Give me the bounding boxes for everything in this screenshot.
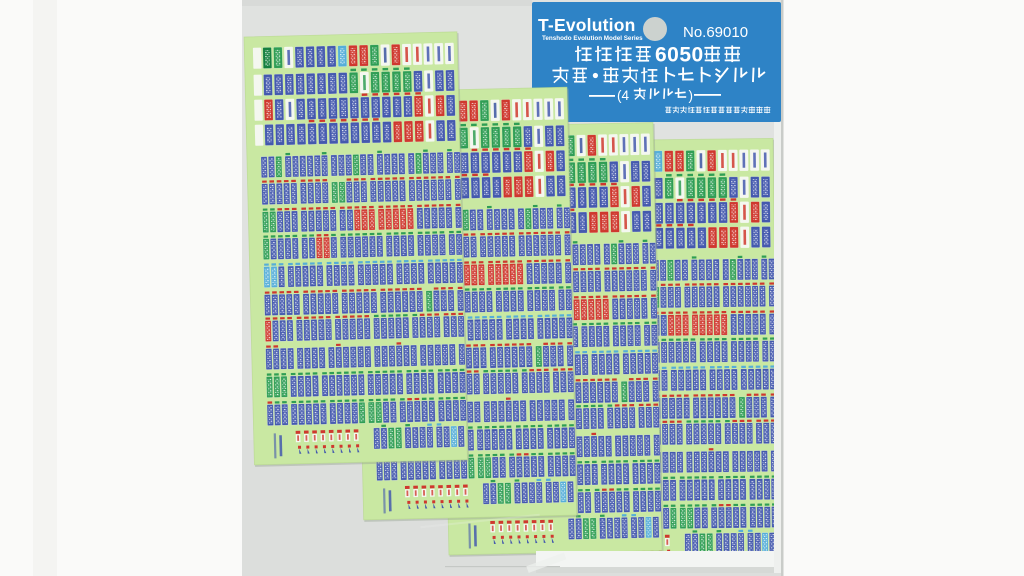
svg-text:): ) — [689, 88, 694, 103]
svg-text:T-Evolution: T-Evolution — [538, 15, 635, 35]
svg-text:Tenshodo Evolution Model Serie: Tenshodo Evolution Model Series — [542, 35, 643, 42]
svg-text:6050: 6050 — [655, 44, 704, 67]
svg-text:No.69010: No.69010 — [683, 24, 748, 41]
svg-text:(4: (4 — [617, 88, 629, 103]
